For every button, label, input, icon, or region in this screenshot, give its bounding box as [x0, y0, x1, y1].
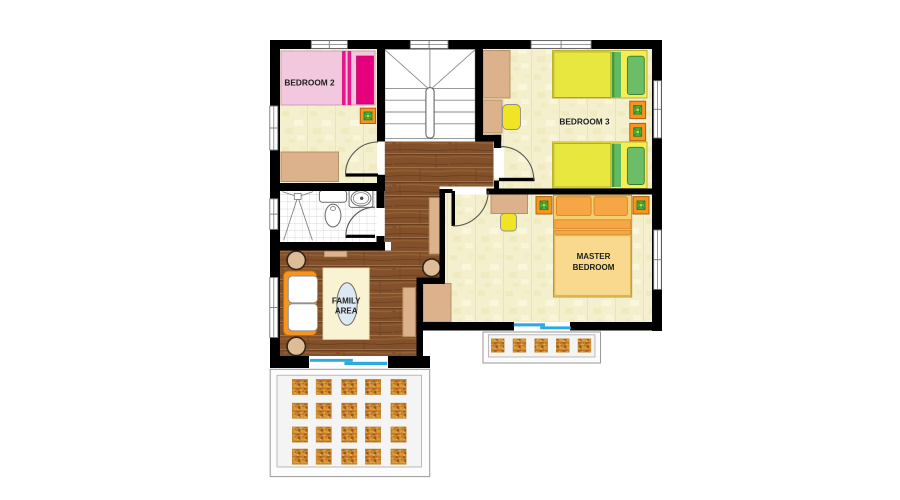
svg-text:AREA: AREA	[335, 307, 358, 316]
svg-text:MASTER: MASTER	[577, 252, 611, 261]
svg-text:FAMILY: FAMILY	[332, 297, 361, 306]
svg-text:BEDROOM: BEDROOM	[573, 263, 615, 272]
svg-text:BEDROOM 3: BEDROOM 3	[559, 117, 610, 127]
svg-text:BEDROOM 2: BEDROOM 2	[284, 78, 335, 88]
